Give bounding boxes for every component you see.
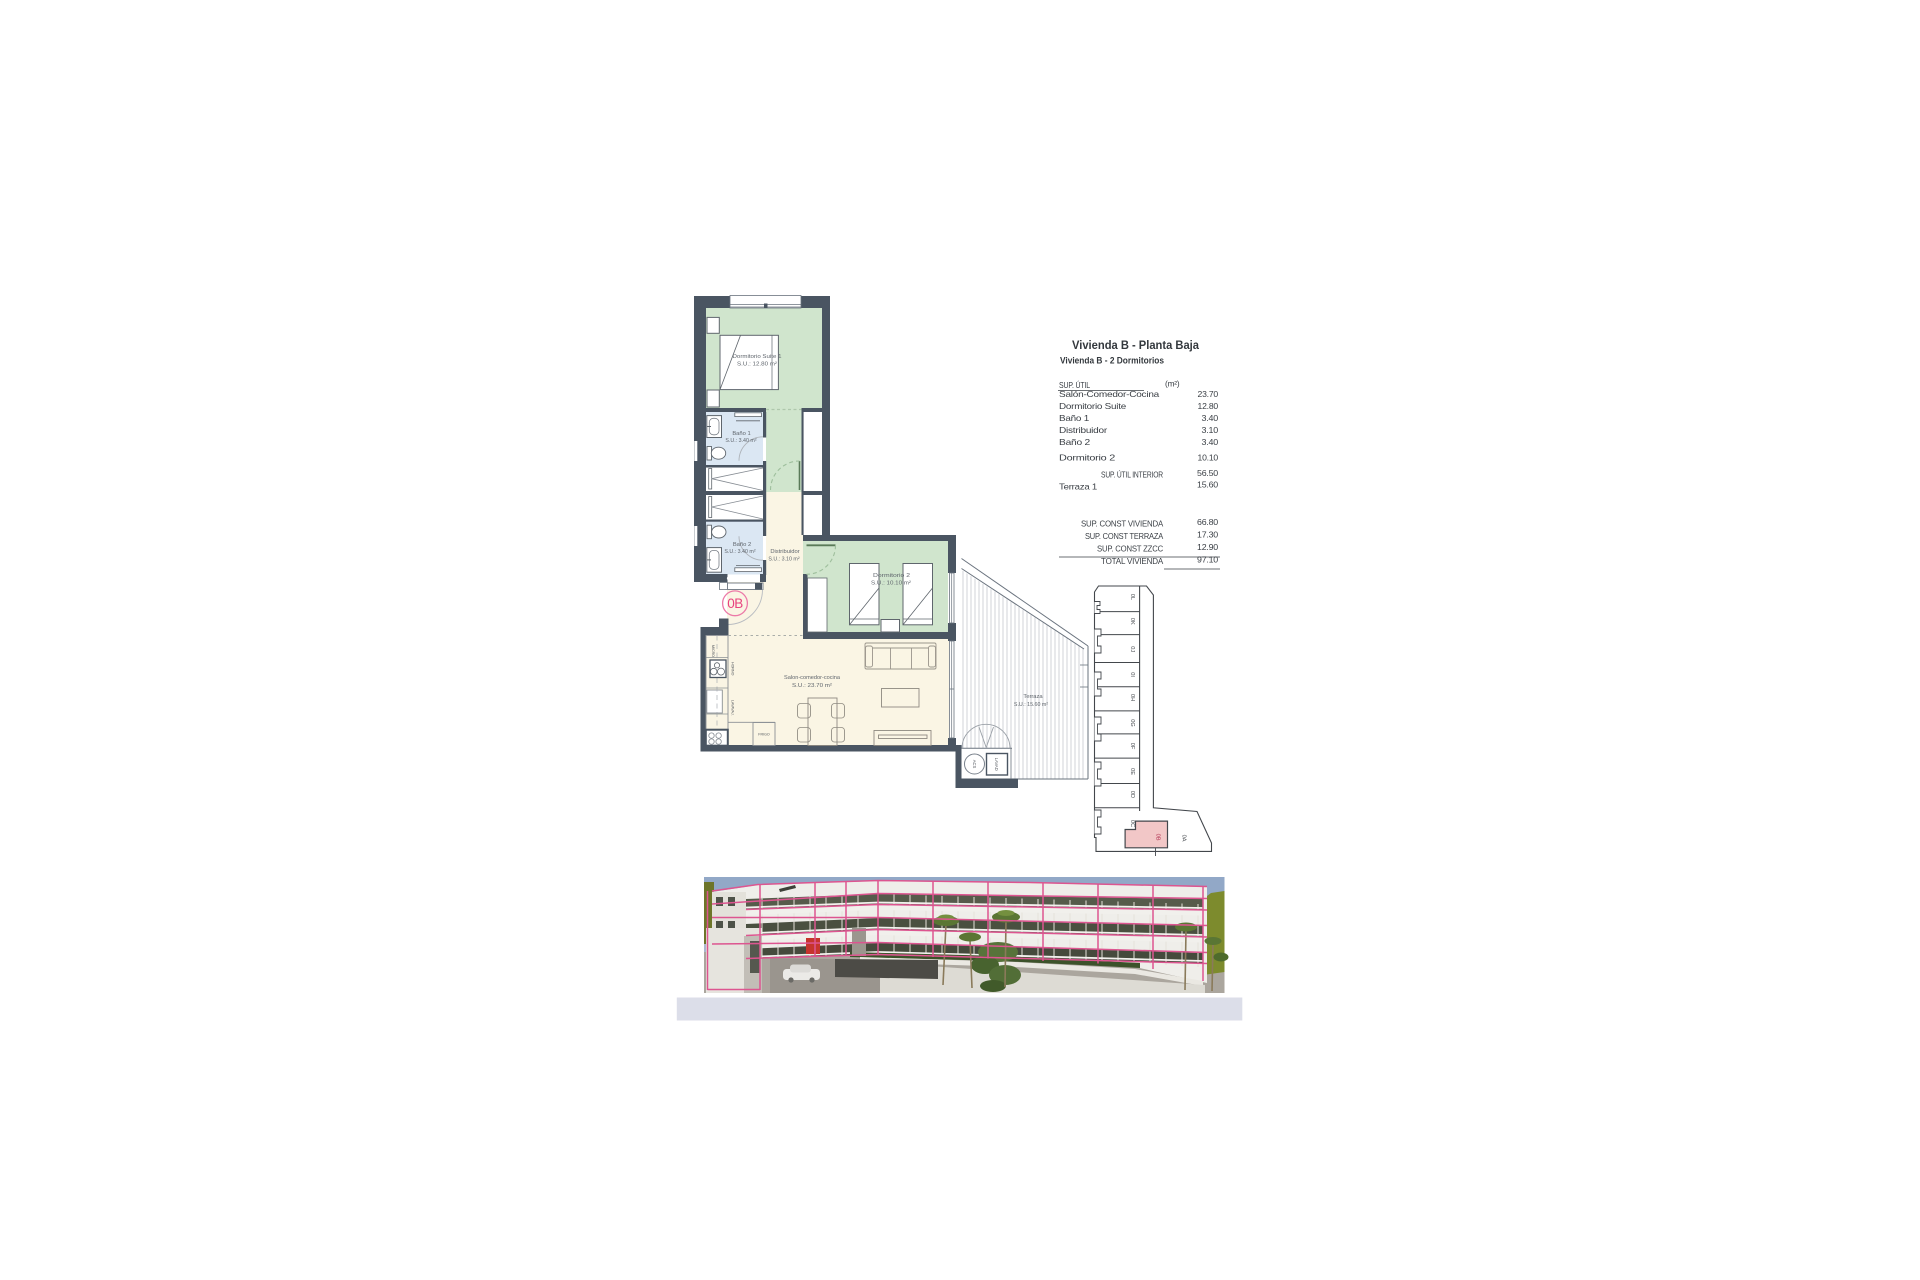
svg-text:15.60: 15.60 (1197, 480, 1219, 490)
svg-text:S.U.: 3.10 m²: S.U.: 3.10 m² (768, 557, 799, 563)
svg-text:3.10: 3.10 (1202, 425, 1219, 435)
svg-text:S.U.: 12.80 m²: S.U.: 12.80 m² (737, 362, 777, 368)
svg-text:56.50: 56.50 (1197, 468, 1219, 478)
svg-text:Baño 2: Baño 2 (733, 542, 751, 548)
svg-text:0E: 0E (1129, 768, 1135, 775)
svg-text:97.10: 97.10 (1197, 555, 1219, 565)
svg-text:Terraza: Terraza (1023, 694, 1043, 700)
svg-text:SUP. CONST TERRAZA: SUP. CONST TERRAZA (1085, 531, 1164, 541)
svg-text:0K: 0K (1129, 618, 1135, 625)
svg-text:0B: 0B (1155, 834, 1161, 841)
svg-text:0A: 0A (1181, 835, 1187, 842)
svg-text:0D: 0D (1129, 791, 1135, 798)
svg-text:Dormitorio 2: Dormitorio 2 (873, 573, 910, 579)
svg-text:23.70: 23.70 (1198, 389, 1219, 399)
svg-text:Salón-Comedor-Cocina: Salón-Comedor-Cocina (1059, 389, 1160, 399)
svg-text:12.80: 12.80 (1198, 401, 1219, 411)
svg-text:Vivienda B - Planta Baja: Vivienda B - Planta Baja (1072, 340, 1200, 352)
svg-text:Dormitorio Suite: Dormitorio Suite (1059, 401, 1127, 411)
svg-text:ACS: ACS (972, 760, 977, 769)
svg-text:LAVAVAJ.: LAVAVAJ. (731, 700, 735, 716)
svg-text:Dormitorio Suite 1: Dormitorio Suite 1 (733, 354, 782, 360)
svg-text:3.40: 3.40 (1202, 413, 1219, 423)
svg-text:3.40: 3.40 (1202, 437, 1219, 447)
svg-text:0G: 0G (1129, 719, 1135, 726)
svg-text:Baño 2: Baño 2 (1059, 437, 1091, 447)
svg-text:Dormitorio 2: Dormitorio 2 (1059, 453, 1116, 463)
svg-text:FRIGO: FRIGO (758, 733, 770, 737)
svg-text:Vivienda B - 2 Dormitorios: Vivienda B - 2 Dormitorios (1060, 356, 1164, 366)
svg-text:10.10: 10.10 (1198, 453, 1219, 463)
svg-text:S.U.: 15.60 m²: S.U.: 15.60 m² (1014, 702, 1048, 708)
svg-text:Baño 1: Baño 1 (732, 431, 750, 437)
svg-text:S.U.: 3.40 m²: S.U.: 3.40 m² (724, 549, 755, 555)
svg-text:HORNO: HORNO (731, 662, 735, 676)
svg-text:MICRO: MICRO (711, 645, 715, 657)
svg-text:SUP. ÚTIL INTERIOR: SUP. ÚTIL INTERIOR (1101, 470, 1163, 480)
svg-text:0L: 0L (1129, 594, 1135, 600)
svg-text:Distribuidor: Distribuidor (770, 549, 799, 555)
svg-text:0H: 0H (1129, 694, 1135, 701)
svg-text:TOTAL VIVIENDA: TOTAL VIVIENDA (1101, 556, 1164, 566)
svg-text:Distribuidor: Distribuidor (1059, 425, 1108, 435)
svg-text:S.U.: 10.10 m²: S.U.: 10.10 m² (871, 581, 911, 587)
svg-text:SUP. CONST VIVIENDA: SUP. CONST VIVIENDA (1081, 519, 1164, 529)
svg-text:0C: 0C (1129, 820, 1135, 827)
svg-text:0I: 0I (1129, 672, 1135, 677)
svg-text:Baño 1: Baño 1 (1059, 413, 1090, 423)
svg-text:(m²): (m²) (1165, 379, 1180, 389)
svg-text:Terraza 1: Terraza 1 (1059, 482, 1098, 492)
svg-text:66.80: 66.80 (1197, 517, 1219, 527)
svg-text:S.U.: 23.70 m²: S.U.: 23.70 m² (792, 683, 832, 689)
svg-text:Salon-comedor-cocina: Salon-comedor-cocina (784, 675, 841, 681)
svg-text:0F: 0F (1129, 743, 1135, 750)
svg-text:SUP. CONST ZZCC: SUP. CONST ZZCC (1097, 544, 1163, 554)
svg-text:12.90: 12.90 (1197, 542, 1219, 552)
svg-text:S.U.: 3.40 m²: S.U.: 3.40 m² (725, 438, 756, 444)
svg-text:LAVAD: LAVAD (994, 758, 999, 771)
svg-text:0B: 0B (727, 596, 743, 611)
svg-text:0J: 0J (1129, 646, 1135, 652)
svg-text:17.30: 17.30 (1197, 530, 1219, 540)
